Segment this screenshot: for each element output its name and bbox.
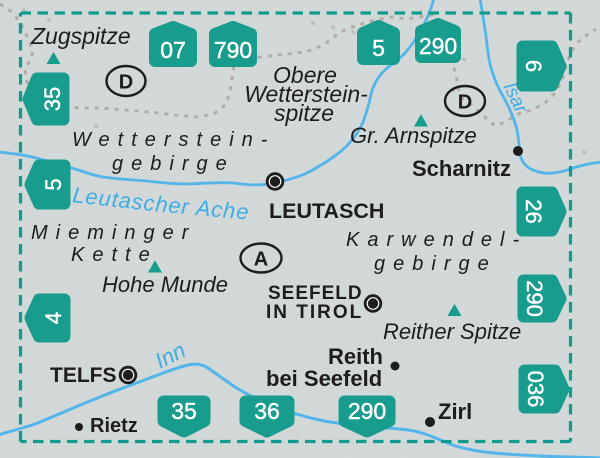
svg-text:SEEFELD: SEEFELD — [268, 283, 363, 304]
svg-text:Hohe Munde: Hohe Munde — [102, 272, 228, 297]
svg-text:790: 790 — [214, 37, 252, 63]
svg-text:6: 6 — [521, 60, 546, 72]
svg-text:07: 07 — [160, 37, 186, 63]
svg-text:35: 35 — [171, 398, 197, 424]
svg-text:IN TIROL: IN TIROL — [266, 302, 363, 323]
svg-text:Wetterstein-: Wetterstein- — [72, 129, 275, 151]
svg-text:290: 290 — [419, 33, 457, 59]
svg-text:5: 5 — [41, 178, 66, 190]
svg-text:290: 290 — [348, 398, 386, 424]
svg-text:Karwendel-: Karwendel- — [346, 229, 527, 251]
svg-text:Zugspitze: Zugspitze — [30, 23, 131, 49]
svg-text:gebirge: gebirge — [112, 153, 235, 175]
svg-text:A: A — [254, 249, 268, 271]
svg-text:bei Seefeld: bei Seefeld — [266, 366, 382, 391]
svg-text:Scharnitz: Scharnitz — [412, 156, 511, 181]
svg-text:Gr. Arnspitze: Gr. Arnspitze — [350, 123, 477, 148]
svg-text:Kette: Kette — [71, 244, 158, 266]
svg-text:D: D — [119, 72, 133, 94]
svg-text:Rietz: Rietz — [90, 415, 138, 437]
svg-text:spitze: spitze — [274, 100, 334, 126]
svg-text:Mieminger: Mieminger — [31, 222, 196, 244]
svg-text:LEUTASCH: LEUTASCH — [269, 199, 384, 223]
svg-text:036: 036 — [523, 371, 548, 408]
svg-text:TELFS: TELFS — [50, 364, 117, 387]
svg-text:D: D — [458, 92, 472, 114]
svg-text:290: 290 — [522, 280, 547, 317]
svg-text:4: 4 — [41, 312, 66, 324]
svg-text:36: 36 — [254, 398, 280, 424]
svg-text:gebirge: gebirge — [374, 253, 497, 275]
svg-text:Reither Spitze: Reither Spitze — [383, 319, 521, 344]
svg-text:Zirl: Zirl — [438, 399, 472, 424]
svg-text:35: 35 — [40, 87, 65, 111]
svg-text:5: 5 — [372, 35, 385, 61]
svg-text:26: 26 — [521, 199, 546, 223]
